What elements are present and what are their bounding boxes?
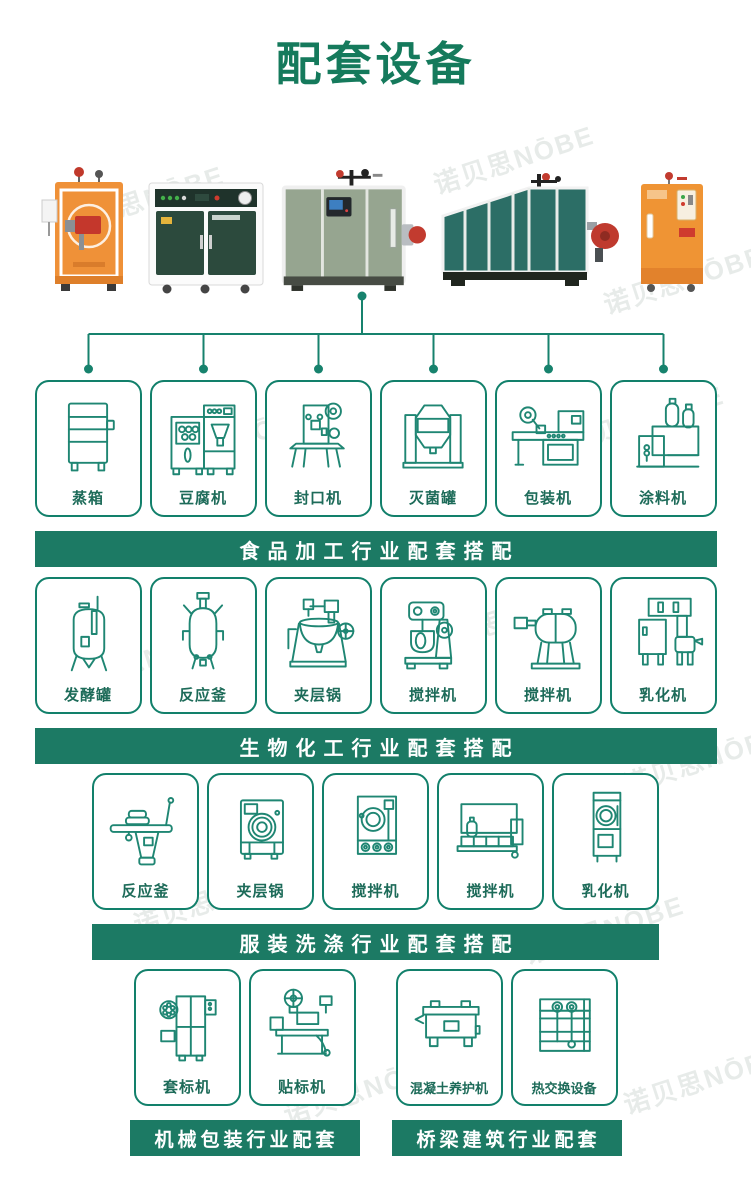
equipment-label: 灭菌罐	[409, 491, 457, 506]
product-photo-green-cabinet-steam-boiler	[147, 179, 265, 294]
equipment-group-bridge-construction: 混凝土养护机 热交换设备	[396, 969, 618, 1106]
packing-machine-icon	[497, 382, 600, 491]
equipment-card: 发酵罐	[35, 577, 142, 714]
page: 诺贝思NŌBE诺贝思NŌBE诺贝思NŌBE诺贝思NŌBE诺贝思NŌBE诺贝思NŌ…	[0, 0, 751, 1187]
equipment-card: 豆腐机	[150, 380, 257, 517]
jacketed-kettle-icon	[267, 579, 370, 688]
equipment-card: 混凝土养护机	[396, 969, 503, 1106]
product-photo-teal-horizontal-steam-boiler	[437, 172, 622, 294]
equipment-card: 反应釜	[150, 577, 257, 714]
equipment-label: 搅拌机	[524, 688, 572, 703]
equipment-row-food-processing: 蒸箱 豆腐机 封口机 灭菌罐 包装机 涂料机	[0, 380, 751, 517]
product-photo-orange-cabinet-steam-generator	[633, 172, 711, 294]
connector-tree	[0, 290, 751, 376]
group-banner-machinery-packing: 机械包装行业配套	[130, 1120, 360, 1156]
page-title: 配套设备	[0, 0, 751, 94]
equipment-label: 贴标机	[278, 1080, 326, 1095]
section-banner-biochemical: 生物化工行业配套搭配	[35, 728, 717, 764]
fermentation-tank-icon	[37, 579, 140, 688]
equipment-label: 套标机	[163, 1080, 211, 1095]
product-photos-row	[0, 136, 751, 294]
flatwork-ironer-icon	[439, 775, 542, 884]
planetary-mixer-icon	[382, 579, 485, 688]
equipment-card: 包装机	[495, 380, 602, 517]
equipment-row-biochemical: 发酵罐 反应釜 夹层锅 搅拌机 搅拌机 乳化机	[0, 577, 751, 714]
washing-machine-icon	[209, 775, 312, 884]
product-photo-orange-vertical-steam-generator	[41, 164, 136, 294]
drum-mixer-icon	[497, 579, 600, 688]
equipment-card: 搅拌机	[322, 773, 429, 910]
equipment-card: 搅拌机	[437, 773, 544, 910]
equipment-label: 搅拌机	[409, 688, 457, 703]
coating-machine-icon	[612, 382, 715, 491]
equipment-group-machinery-packing: 套标机 贴标机	[134, 969, 356, 1106]
equipment-card: 乳化机	[552, 773, 659, 910]
product-photo-sage-cube-steam-boiler	[276, 166, 426, 294]
steam-cabinet-icon	[37, 382, 140, 491]
group-banner-bridge-construction: 桥梁建筑行业配套	[392, 1120, 622, 1156]
equipment-label: 蒸箱	[72, 491, 104, 506]
equipment-card: 蒸箱	[35, 380, 142, 517]
sterilizer-tank-icon	[382, 382, 485, 491]
equipment-label: 搅拌机	[466, 884, 514, 899]
section-banner-laundry: 服装洗涤行业配套搭配	[92, 924, 659, 960]
sleeve-labeler-icon	[136, 971, 239, 1080]
equipment-card: 热交换设备	[511, 969, 618, 1106]
equipment-label: 反应釜	[179, 688, 227, 703]
equipment-label: 夹层锅	[236, 884, 284, 899]
equipment-label: 混凝土养护机	[410, 1082, 488, 1095]
ironing-table-icon	[94, 775, 197, 884]
equipment-label: 涂料机	[639, 491, 687, 506]
equipment-card: 乳化机	[610, 577, 717, 714]
section-banner-food-processing: 食品加工行业配套搭配	[35, 531, 717, 567]
industry-sections: 蒸箱 豆腐机 封口机 灭菌罐 包装机 涂料机食品加工行业配套搭配 发酵罐 反应釜…	[0, 380, 751, 960]
bottom-card-groups: 套标机 贴标机 混凝土养护机 热交换设备	[0, 969, 751, 1106]
equipment-label: 乳化机	[639, 688, 687, 703]
equipment-label: 搅拌机	[351, 884, 399, 899]
equipment-card: 夹层锅	[265, 577, 372, 714]
equipment-card: 夹层锅	[207, 773, 314, 910]
reaction-kettle-icon	[152, 579, 255, 688]
tall-dryer-icon	[554, 775, 657, 884]
equipment-card: 反应釜	[92, 773, 199, 910]
emulsifier-icon	[612, 579, 715, 688]
equipment-label: 反应釜	[121, 884, 169, 899]
equipment-card: 贴标机	[249, 969, 356, 1106]
equipment-label: 豆腐机	[179, 491, 227, 506]
equipment-card: 搅拌机	[380, 577, 487, 714]
equipment-label: 包装机	[524, 491, 572, 506]
tofu-machine-icon	[152, 382, 255, 491]
equipment-label: 发酵罐	[64, 688, 112, 703]
equipment-card: 套标机	[134, 969, 241, 1106]
concrete-curing-machine-icon	[398, 971, 501, 1082]
bottom-banners: 机械包装行业配套桥梁建筑行业配套	[0, 1120, 751, 1156]
equipment-card: 封口机	[265, 380, 372, 517]
sealing-machine-icon	[267, 382, 370, 491]
equipment-label: 热交换设备	[531, 1082, 596, 1095]
equipment-label: 夹层锅	[294, 688, 342, 703]
equipment-label: 封口机	[294, 491, 342, 506]
equipment-card: 灭菌罐	[380, 380, 487, 517]
equipment-row-laundry: 反应釜 夹层锅 搅拌机 搅拌机 乳化机	[0, 773, 751, 910]
dryer-machine-icon	[324, 775, 427, 884]
labeling-machine-icon	[251, 971, 354, 1080]
equipment-card: 涂料机	[610, 380, 717, 517]
heat-exchanger-icon	[513, 971, 616, 1082]
equipment-card: 搅拌机	[495, 577, 602, 714]
equipment-label: 乳化机	[581, 884, 629, 899]
